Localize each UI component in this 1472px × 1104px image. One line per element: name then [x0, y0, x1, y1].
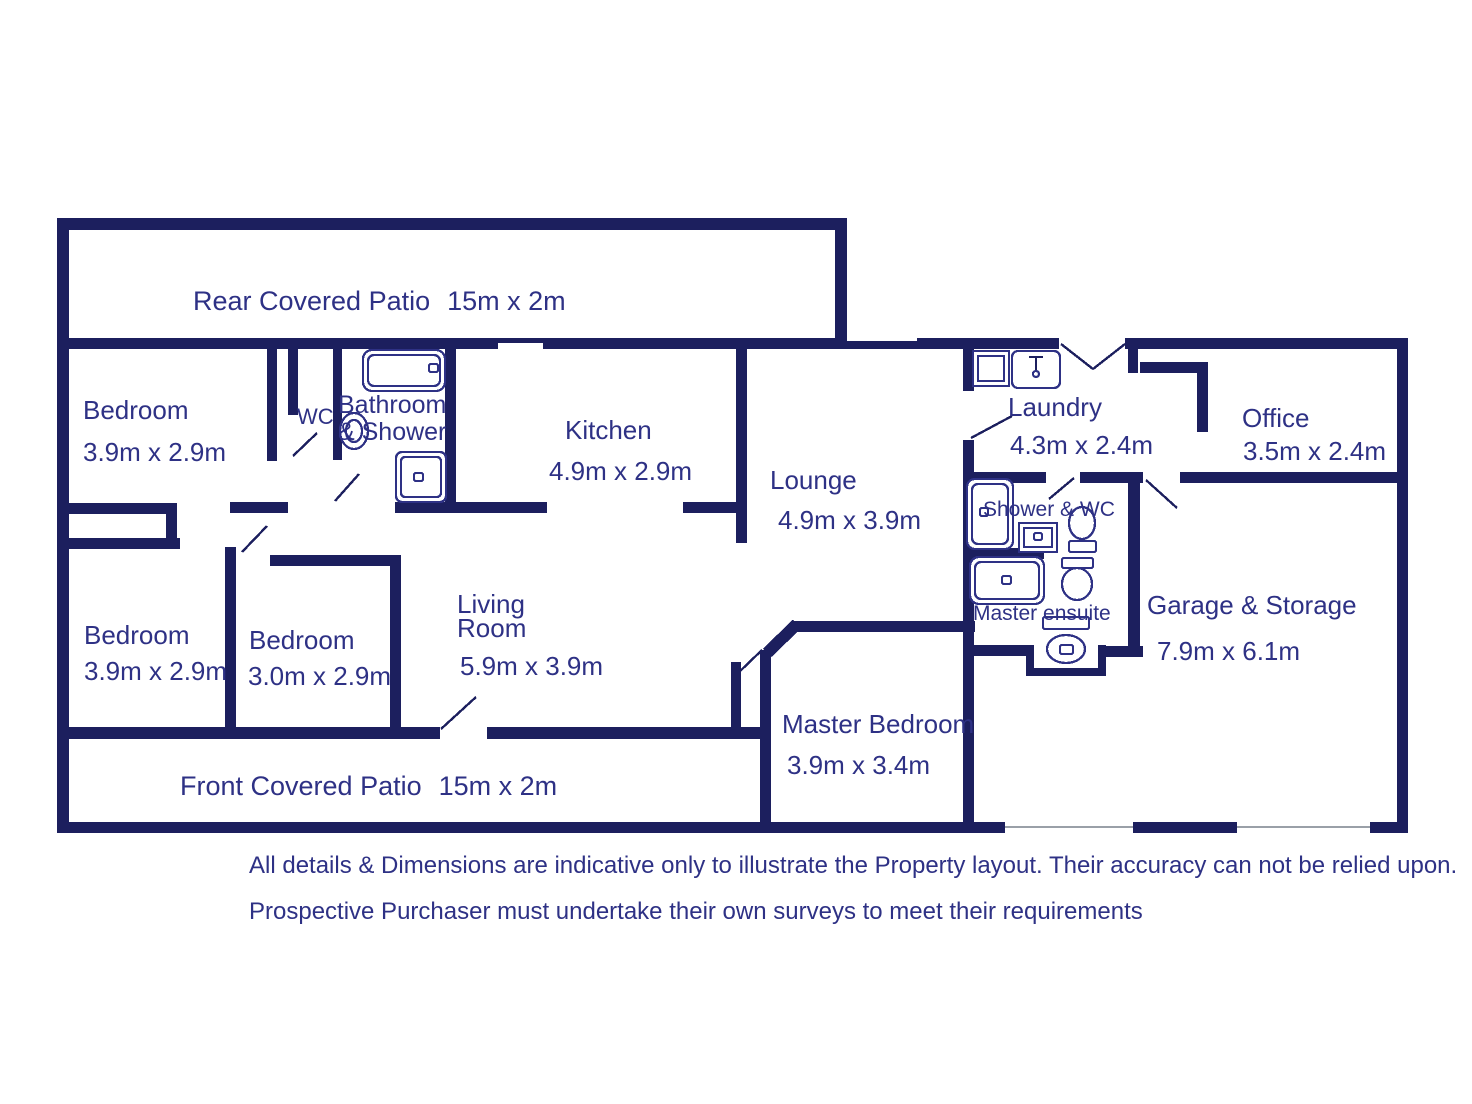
room-label-laundry-name: Laundry [1008, 393, 1102, 422]
room-label-bedroom-top-left-dims: 3.9m x 2.9m [83, 438, 226, 467]
room-label-office-dims: 3.5m x 2.4m [1243, 437, 1386, 466]
room-label-lounge-dims: 4.9m x 3.9m [778, 506, 921, 535]
room-dims: 15m x 2m [439, 771, 558, 801]
bathtub-icon [970, 557, 1044, 604]
room-label-bedroom-top-left-name: Bedroom [83, 396, 189, 425]
room-label-bedroom-bottom-left-name: Bedroom [84, 621, 190, 650]
room-dims: 15m x 2m [447, 286, 566, 316]
entry-recess-walls [1128, 349, 1208, 432]
disclaimer-line-2: Prospective Purchaser must undertake the… [249, 898, 1143, 926]
shower-tray-icon [396, 452, 446, 502]
room-label-bathroom-line2: & Shower [338, 419, 446, 447]
room-label-lounge-name: Lounge [770, 466, 857, 495]
room-label-shower-wc: Shower & WC [983, 498, 1115, 521]
bathtub-icon [363, 350, 445, 391]
room-label-laundry-dims: 4.3m x 2.4m [1010, 431, 1153, 460]
room-label-rear-patio: Rear Covered Patio15m x 2m [193, 287, 566, 317]
room-label-bedroom-bottom-left-dims: 3.9m x 2.9m [84, 657, 227, 686]
room-label-garage-name: Garage & Storage [1147, 591, 1357, 620]
room-label-front-patio: Front Covered Patio15m x 2m [180, 772, 557, 802]
wash-basin-icon [1019, 523, 1057, 552]
room-label-wc: WC [297, 405, 334, 429]
room-label-bedroom-bottom-mid-dims: 3.0m x 2.9m [248, 662, 391, 691]
disclaimer-line-1: All details & Dimensions are indicative … [249, 852, 1457, 880]
room-label-garage-dims: 7.9m x 6.1m [1157, 637, 1300, 666]
washing-machine-icon [973, 351, 1009, 386]
laundry-sink-icon [1012, 351, 1060, 388]
room-label-bedroom-bottom-mid-name: Bedroom [249, 626, 355, 655]
room-label-kitchen-name: Kitchen [565, 416, 652, 445]
floorplan-drawing [0, 0, 1472, 1104]
room-label-kitchen-dims: 4.9m x 2.9m [549, 457, 692, 486]
room-label-living-room-dims: 5.9m x 3.9m [460, 652, 603, 681]
room-label-office-name: Office [1242, 404, 1309, 433]
toilet-icon [1062, 558, 1093, 600]
room-name: Rear Covered Patio [193, 286, 430, 316]
room-label-living-room-line2: Room [457, 614, 526, 643]
room-label-master-ensuite: Master ensuite [973, 602, 1111, 625]
room-label-master-bedroom-dims: 3.9m x 3.4m [787, 751, 930, 780]
room-label-bathroom-line1: Bathroom [338, 392, 446, 420]
room-label-master-bedroom-name: Master Bedroom [782, 710, 974, 739]
floorplan-canvas: Rear Covered Patio15m x 2m Bedroom 3.9m … [0, 0, 1472, 1104]
room-name: Front Covered Patio [180, 771, 422, 801]
